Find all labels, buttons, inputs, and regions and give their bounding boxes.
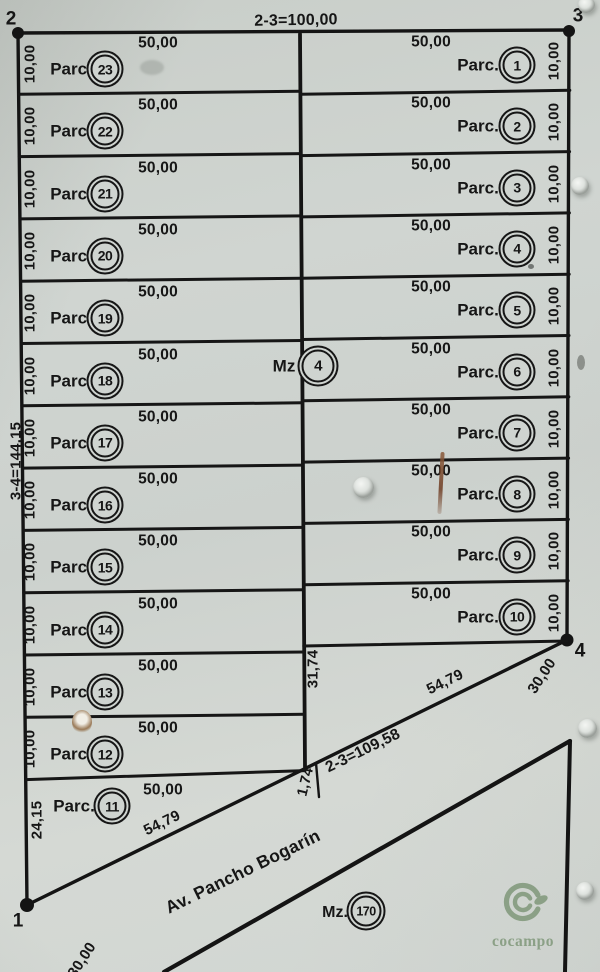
parcel11-front-dim: 50,00 — [143, 782, 183, 798]
parcel-depth-dim: 10,00 — [23, 543, 38, 582]
parcel-number: 4 — [503, 234, 532, 263]
parcel-number-circle: 21 — [87, 175, 124, 212]
parcel-label: Parc. — [457, 486, 499, 503]
parcel-front-dim: 50,00 — [411, 157, 451, 173]
plat-sign-photo: 2 3 4 1 2-3=100,00 3-4=144,15 Mz 4 31,74… — [0, 0, 600, 972]
parcel-number: 7 — [503, 418, 532, 447]
parcel-depth-dim: 10,00 — [547, 410, 562, 449]
parcel-number: 9 — [503, 541, 532, 570]
parcel-front-dim: 50,00 — [138, 160, 178, 176]
parcel-front-dim: 50,00 — [411, 586, 451, 602]
boundary-line-top — [18, 30, 569, 33]
block-number: 4 — [302, 350, 335, 383]
survey-point-4-label: 4 — [575, 642, 586, 661]
parcel-boundary-line — [22, 403, 303, 406]
parcel-number: 6 — [503, 357, 532, 386]
screw-bolt — [578, 719, 597, 738]
parcel-boundary-line — [21, 278, 302, 281]
parcel-front-dim: 50,00 — [138, 471, 178, 487]
parcel-number-circle: 1 — [499, 47, 536, 84]
parcel-boundary-line — [25, 714, 305, 717]
parcel-number: 22 — [91, 117, 120, 146]
parcel-front-dim: 50,00 — [138, 409, 178, 425]
parcel-front-dim: 50,00 — [138, 284, 178, 300]
parcel-boundary-line — [23, 527, 303, 530]
parcel-front-dim: 50,00 — [411, 218, 451, 234]
parcel-front-dim: 50,00 — [138, 721, 178, 737]
parcel-front-dim: 50,00 — [138, 534, 178, 550]
parcel-number-circle: 13 — [87, 674, 124, 711]
parcel-number: 5 — [503, 296, 532, 325]
screw-bolt — [576, 882, 594, 900]
parcel-number: 16 — [91, 491, 120, 520]
parcel-boundary-line — [19, 154, 301, 157]
parcel-number: 8 — [503, 480, 532, 509]
parcel-depth-dim: 10,00 — [547, 348, 562, 387]
parcel-number-circle: 3 — [499, 169, 536, 206]
parcel-depth-dim: 10,00 — [547, 532, 562, 571]
parcel-number-circle: 5 — [499, 292, 536, 329]
screw-bolt — [353, 477, 374, 498]
parcel-front-dim: 50,00 — [138, 35, 178, 51]
parcel-number-circle: 22 — [87, 113, 124, 150]
parcel-label: Parc. — [457, 608, 499, 625]
parcel-number-circle: 10 — [499, 598, 536, 635]
parcel-depth-dim: 10,00 — [547, 42, 562, 81]
parcel-boundary-line — [20, 216, 301, 219]
parcel-number: 21 — [91, 179, 120, 208]
cocampo-logo-text: cocampo — [492, 933, 554, 951]
parcel-number-circle: 9 — [499, 537, 536, 574]
parcel-number-circle: 16 — [87, 487, 124, 524]
parcel-depth-dim: 10,00 — [23, 481, 38, 520]
parcel-number: 12 — [91, 740, 120, 769]
block-label: Mz — [273, 358, 296, 375]
parcel-number: 14 — [91, 615, 120, 644]
parcel-depth-dim: 10,00 — [23, 668, 38, 707]
parcel-front-dim: 50,00 — [138, 347, 178, 363]
parcel-depth-dim: 10,00 — [23, 605, 38, 644]
neighbor-block-number-circle: 170 — [347, 892, 386, 931]
parcel-boundary-line — [24, 652, 304, 655]
survey-point-3-dot — [563, 25, 575, 37]
parcel-number: 3 — [503, 173, 532, 202]
parcel-number-circle: 18 — [87, 362, 124, 399]
parcel-front-dim: 50,00 — [411, 279, 451, 295]
parcel-number-circle: 20 — [87, 237, 124, 274]
parcel-number-circle: 19 — [87, 300, 124, 337]
parcel11-label: Parc. — [53, 798, 95, 815]
parcel-depth-dim: 10,00 — [547, 226, 562, 265]
block170-edge-line — [565, 741, 570, 972]
parcel-depth-dim: 10,00 — [23, 107, 38, 146]
parcel-front-dim: 50,00 — [411, 96, 451, 112]
parcel-number-circle: 23 — [87, 51, 124, 88]
parcel-number-circle: 7 — [499, 414, 536, 451]
parcel-number-circle: 6 — [499, 353, 536, 390]
parcel-number: 2 — [503, 112, 532, 141]
parcel-number-circle: 17 — [87, 424, 124, 461]
parcel-number: 13 — [91, 678, 120, 707]
parcel-front-dim: 50,00 — [411, 463, 451, 479]
parcel-depth-dim: 10,00 — [547, 287, 562, 326]
parcel-number-circle: 8 — [499, 476, 536, 513]
survey-point-2-label: 2 — [6, 10, 17, 29]
parcel-boundary-line — [24, 590, 304, 593]
parcel-label: Parc. — [457, 363, 499, 380]
neighbor-block-label: Mz. — [322, 905, 348, 921]
parcel-number-circle: 12 — [87, 736, 124, 773]
parcel-front-dim: 50,00 — [138, 596, 178, 612]
parcel-depth-dim: 10,00 — [547, 471, 562, 510]
screw-bolt — [571, 177, 589, 195]
parcel-boundary-line — [304, 641, 567, 646]
parcel-depth-dim: 10,00 — [23, 232, 38, 271]
parcel-front-dim: 50,00 — [138, 658, 178, 674]
parcel-depth-dim: 10,00 — [23, 356, 38, 395]
parcel-depth-dim: 10,00 — [23, 45, 38, 84]
parcel-number-circle: 4 — [499, 230, 536, 267]
survey-point-1-label: 1 — [13, 912, 24, 931]
dimension-tick — [316, 763, 319, 797]
parcel-number: 19 — [91, 304, 120, 333]
parcel-number: 17 — [91, 428, 120, 457]
parcel-front-dim: 50,00 — [411, 402, 451, 418]
parcel11-number-circle: 11 — [94, 788, 131, 825]
parcel-label: Parc. — [457, 179, 499, 196]
parcel-number: 23 — [91, 55, 120, 84]
center-offset-dimension: 31,74 — [306, 650, 321, 689]
parcel-label: Parc. — [457, 547, 499, 564]
parcel-depth-dim: 10,00 — [547, 593, 562, 632]
parcel-depth-dim: 10,00 — [23, 730, 38, 769]
parcel-front-dim: 50,00 — [411, 525, 451, 541]
block-number-circle: 4 — [298, 346, 339, 387]
parcel-number-circle: 14 — [87, 611, 124, 648]
parcel-label: Parc. — [457, 240, 499, 257]
parcel-depth-dim: 10,00 — [23, 294, 38, 333]
parcel-boundary-line — [21, 341, 302, 344]
parcel-depth-dim: 10,00 — [547, 103, 562, 142]
parcel-depth-dim: 10,00 — [547, 164, 562, 203]
parcel-label: Parc. — [457, 118, 499, 135]
cocampo-logo-icon — [495, 878, 551, 930]
parcel-label: Parc. — [457, 302, 499, 319]
top-boundary-dimension: 2-3=100,00 — [254, 12, 338, 29]
parcel-number: 15 — [91, 553, 120, 582]
neighbor-block-number: 170 — [351, 896, 382, 927]
parcel-number: 10 — [503, 602, 532, 631]
parcel-number-circle: 15 — [87, 549, 124, 586]
parcel-depth-dim: 10,00 — [23, 169, 38, 208]
parcel-boundary-line — [22, 465, 302, 468]
parcel-front-dim: 50,00 — [138, 98, 178, 114]
parcel-front-dim: 50,00 — [411, 341, 451, 357]
parcel-number: 20 — [91, 241, 120, 270]
parcel-number-circle: 2 — [499, 108, 536, 145]
parcel-label: Parc. — [457, 424, 499, 441]
parcel-label: Parc. — [457, 57, 499, 74]
parcel-front-dim: 50,00 — [411, 34, 451, 50]
parcel-number: 1 — [503, 51, 532, 80]
parcel-boundary-line — [19, 91, 301, 94]
parcel-number: 18 — [91, 366, 120, 395]
cocampo-logo: cocampo — [492, 878, 554, 951]
parcel11-number: 11 — [98, 792, 127, 821]
parcel-front-dim: 50,00 — [138, 222, 178, 238]
parcel-depth-dim: 10,00 — [23, 419, 38, 458]
parcel-boundary-line — [26, 771, 305, 780]
parcel11-side-dim: 24,15 — [30, 801, 45, 840]
